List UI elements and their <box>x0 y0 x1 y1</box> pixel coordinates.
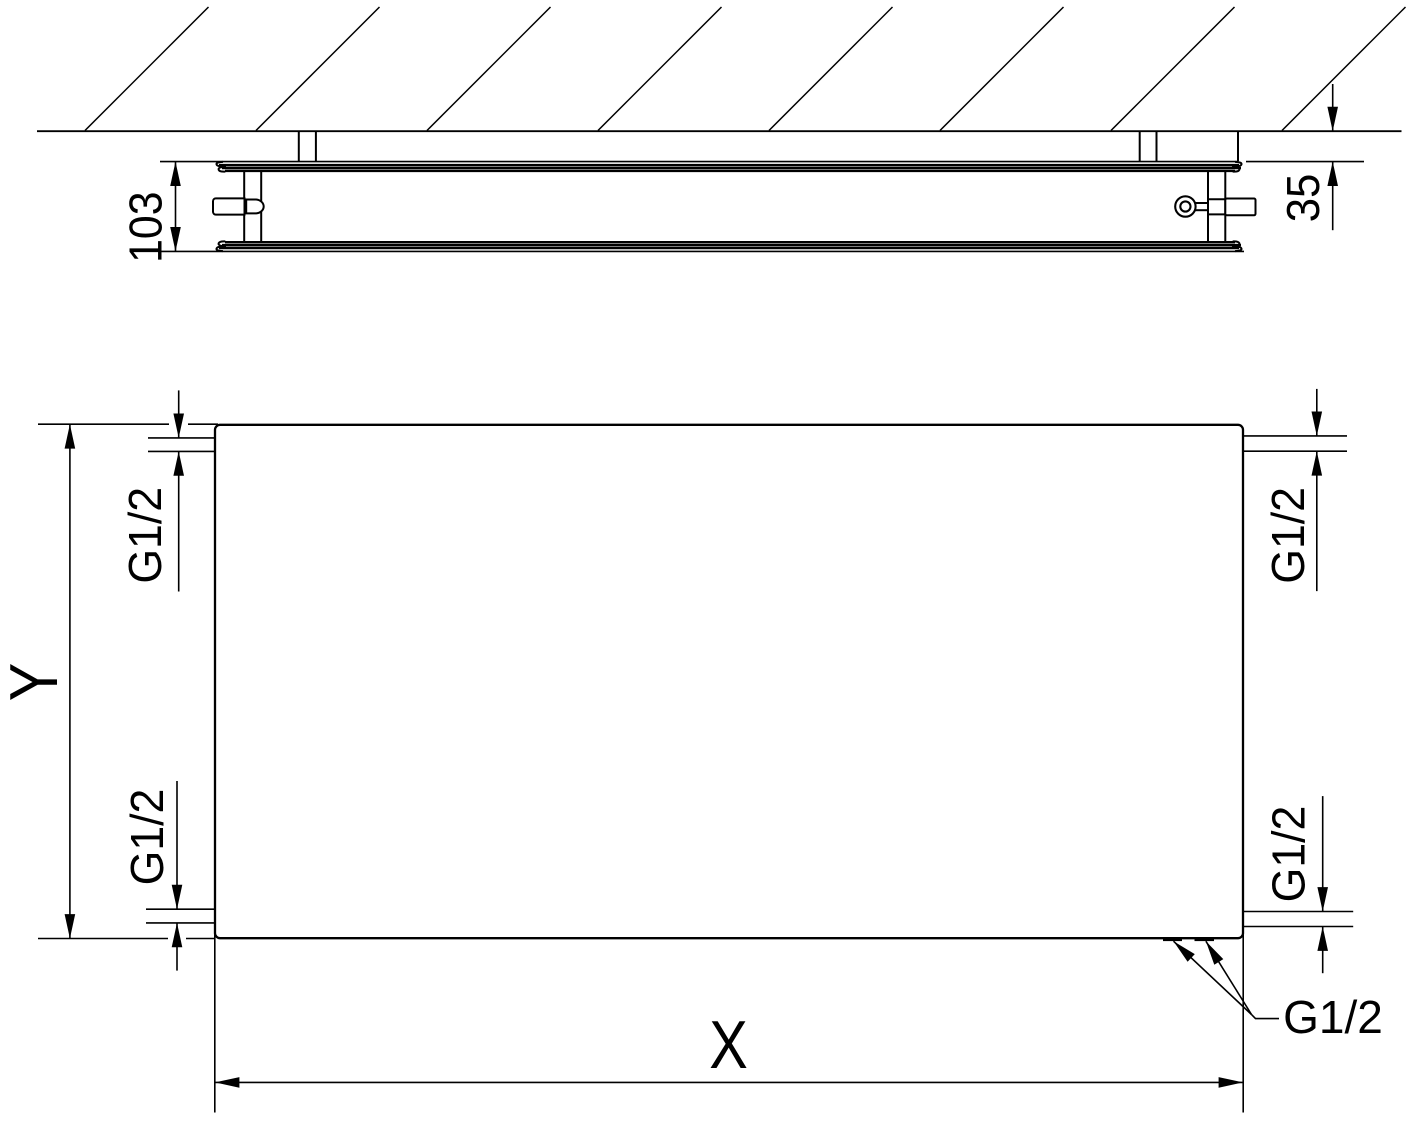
svg-text:G1/2: G1/2 <box>119 487 171 584</box>
svg-text:Y: Y <box>0 663 72 702</box>
svg-text:103: 103 <box>121 192 172 263</box>
svg-text:X: X <box>709 1008 748 1083</box>
svg-text:G1/2: G1/2 <box>121 789 173 886</box>
svg-text:G1/2: G1/2 <box>1262 487 1314 584</box>
svg-text:35: 35 <box>1277 174 1329 223</box>
svg-text:G1/2: G1/2 <box>1263 806 1315 903</box>
svg-text:G1/2: G1/2 <box>1283 991 1383 1043</box>
